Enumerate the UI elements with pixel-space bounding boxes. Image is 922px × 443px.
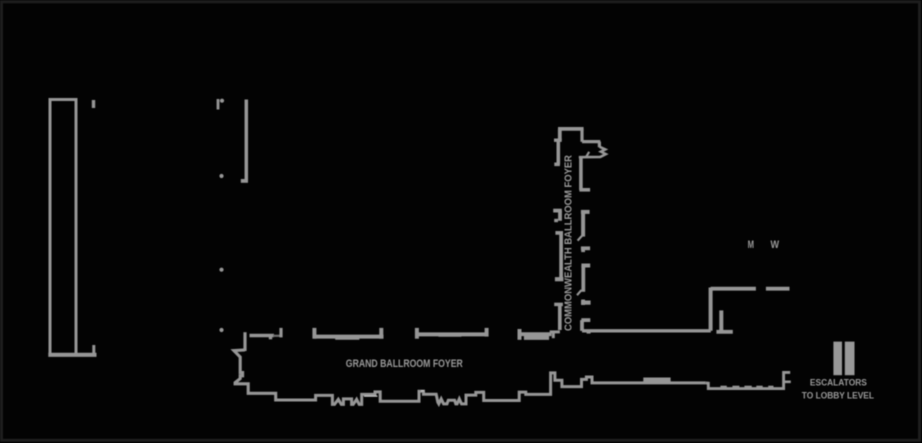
svg-text:COMMONWEALTH BALLROOM FOYER: COMMONWEALTH BALLROOM FOYER [563, 155, 574, 331]
svg-text:ESCALATORS: ESCALATORS [810, 377, 868, 388]
svg-text:GRAND BALLROOM FOYER: GRAND BALLROOM FOYER [346, 358, 463, 370]
svg-text:TO LOBBY LEVEL: TO LOBBY LEVEL [802, 391, 874, 402]
svg-text:W: W [771, 239, 780, 251]
svg-text:M: M [748, 239, 754, 251]
